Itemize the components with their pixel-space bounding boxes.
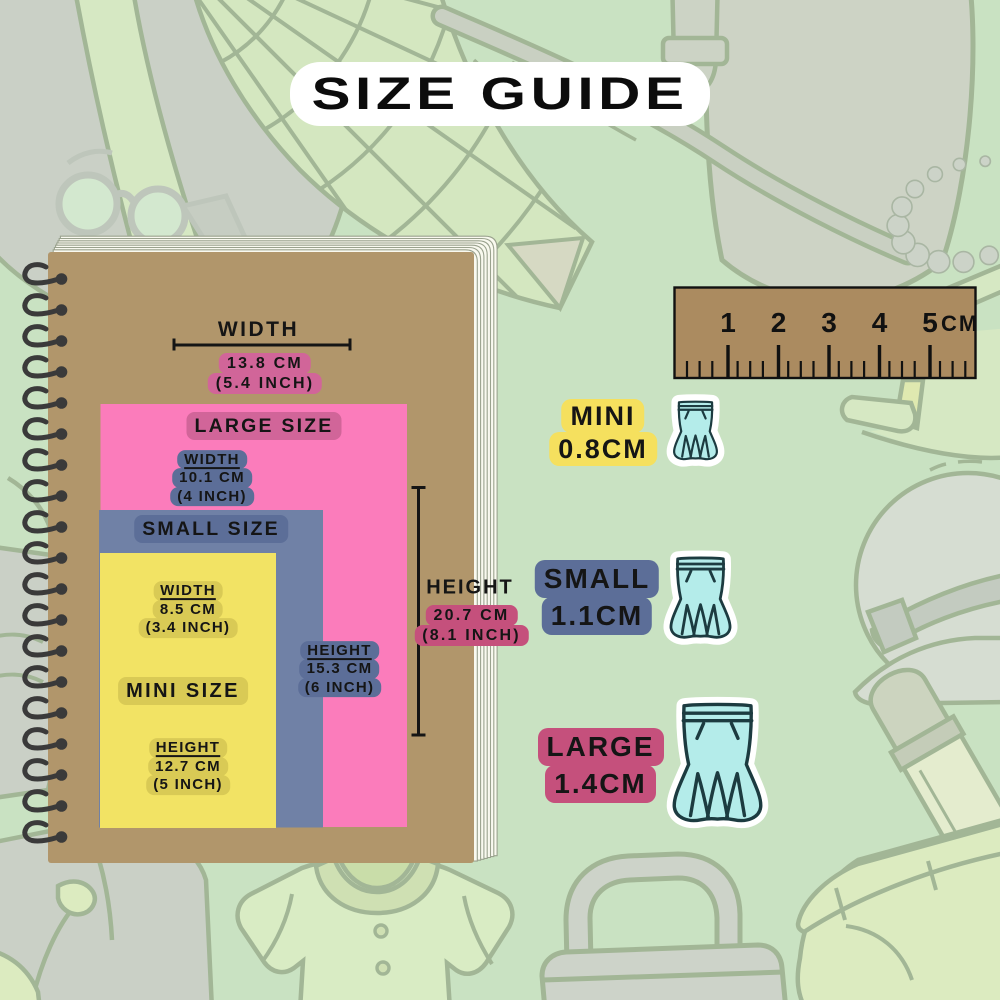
svg-text:4: 4 — [872, 307, 888, 338]
svg-text:1: 1 — [720, 307, 736, 338]
svg-text:2: 2 — [771, 307, 787, 338]
svg-text:CM: CM — [941, 311, 979, 336]
svg-text:5: 5 — [922, 307, 938, 338]
svg-text:3: 3 — [821, 307, 837, 338]
